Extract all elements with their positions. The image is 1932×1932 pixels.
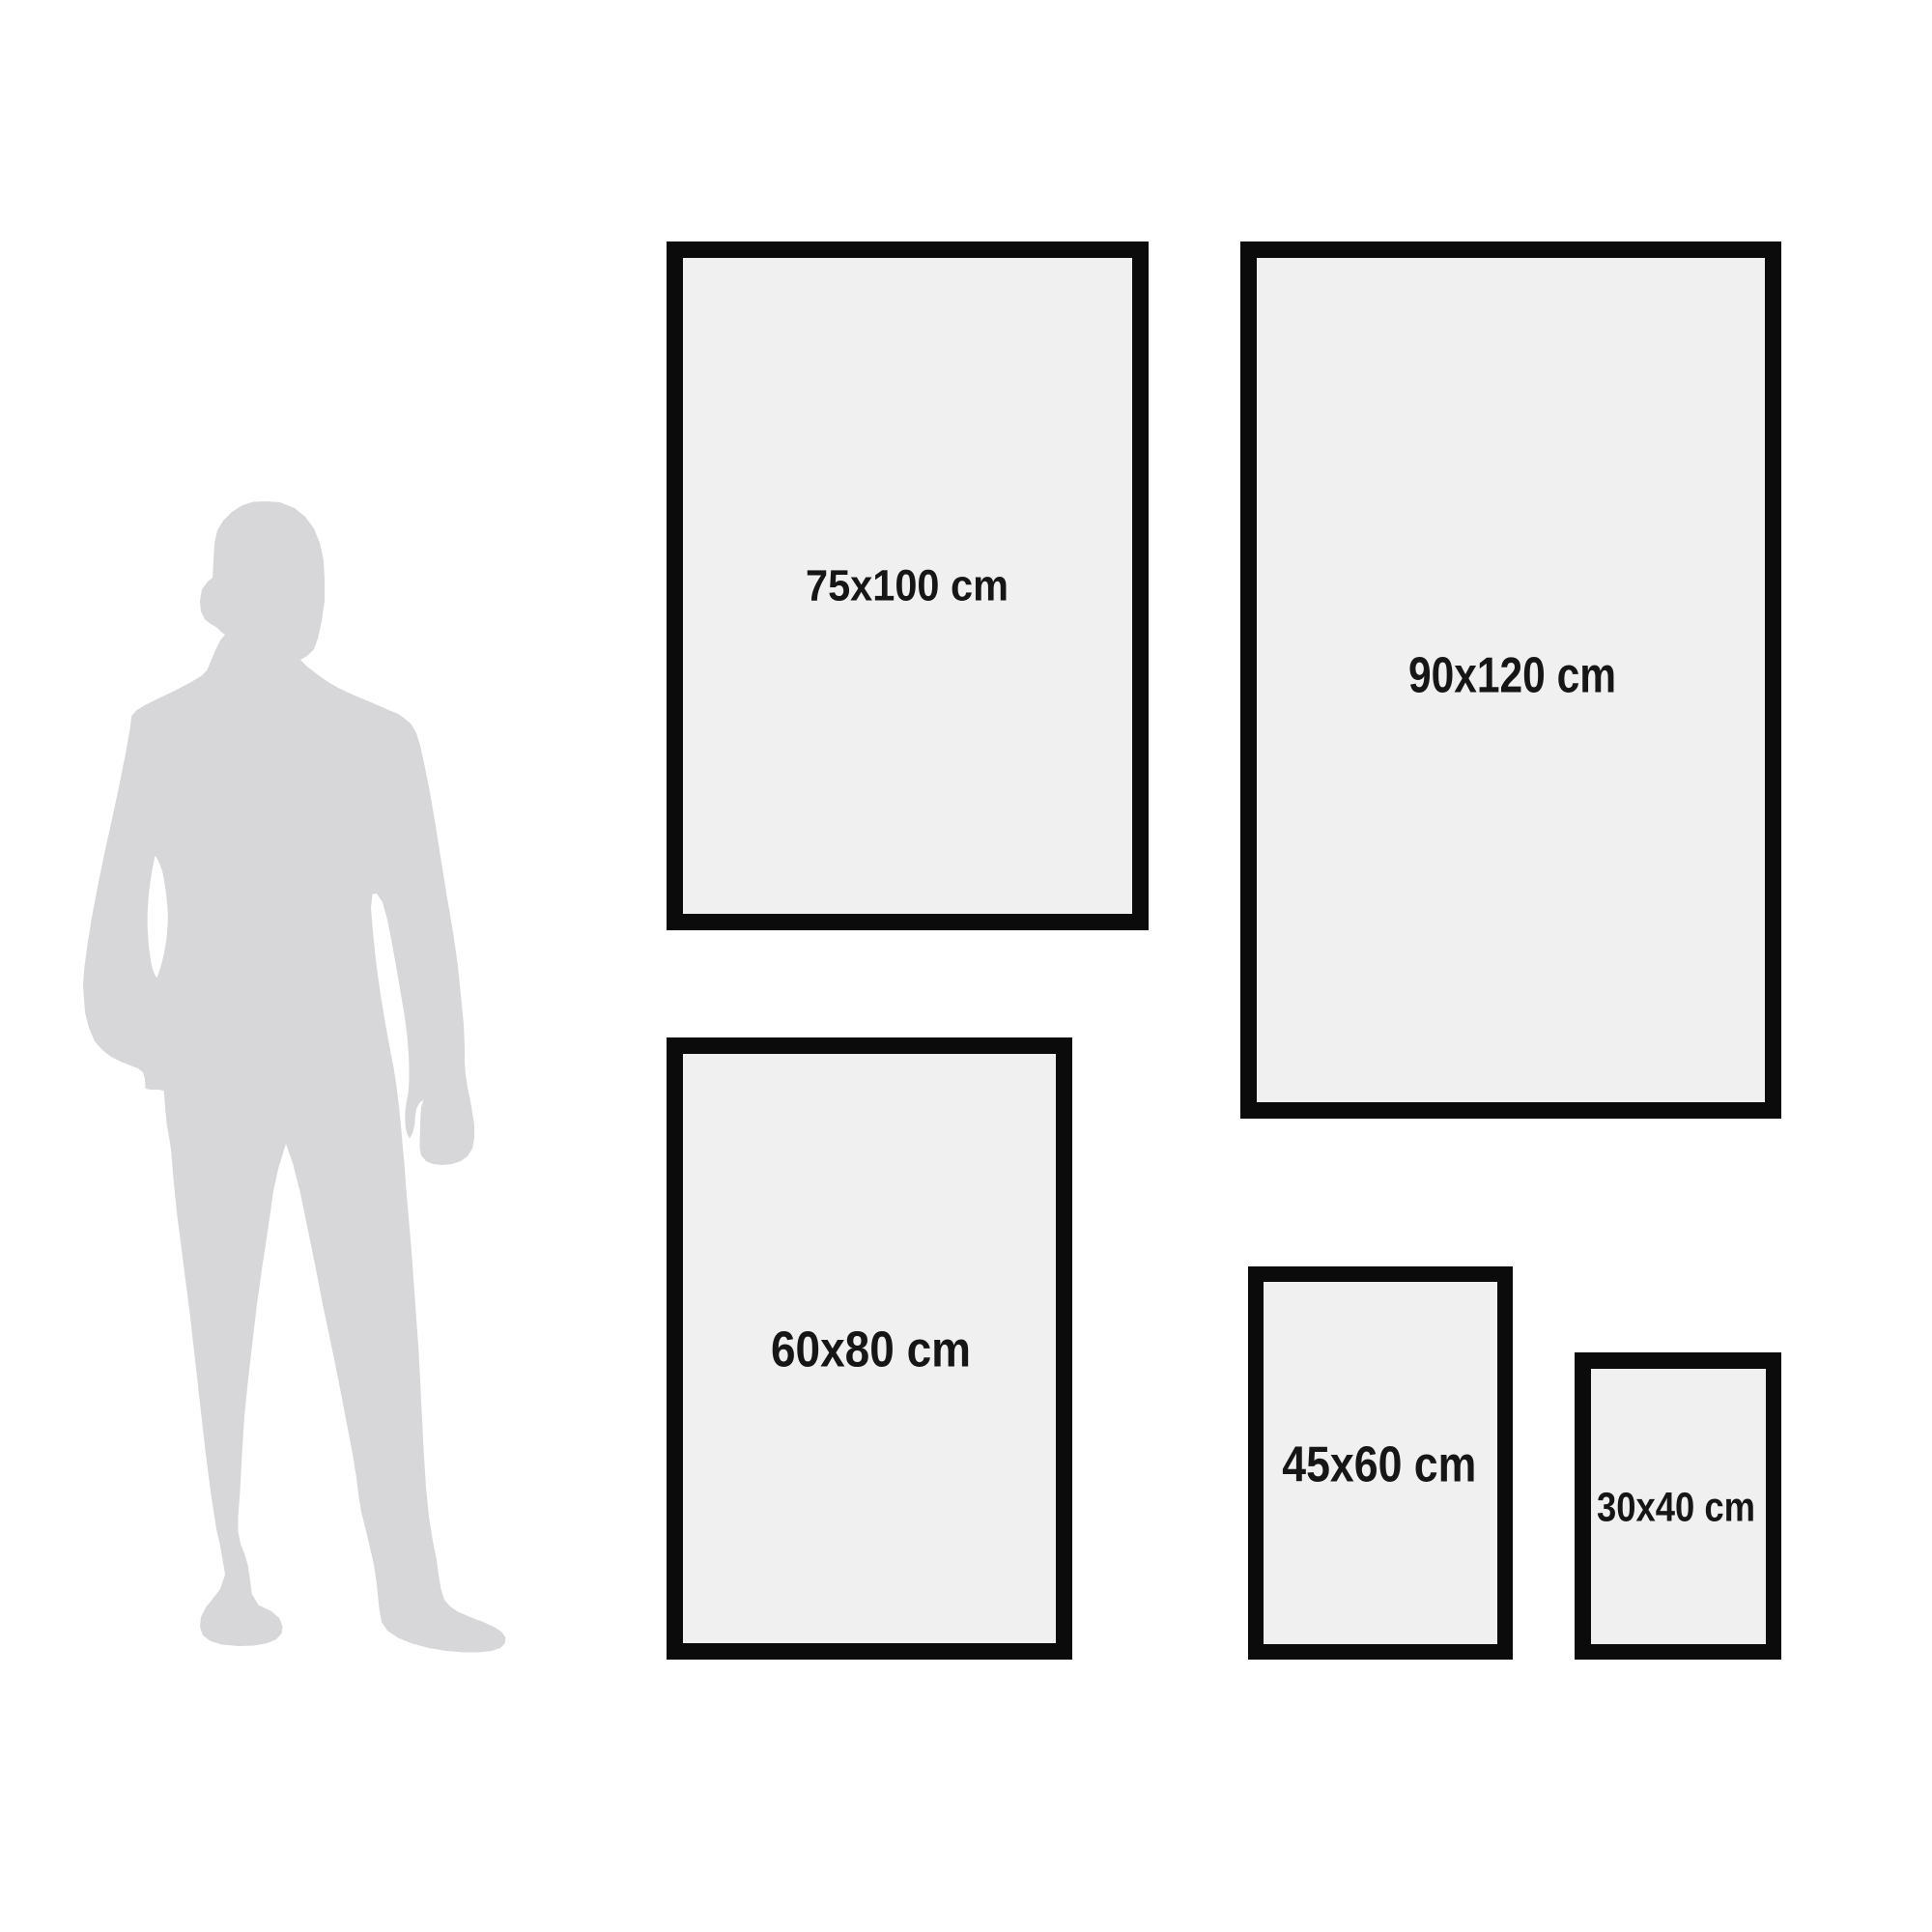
svg-text:30x40 cm: 30x40 cm xyxy=(1597,1484,1755,1530)
svg-text:45x60 cm: 45x60 cm xyxy=(1282,1435,1476,1492)
svg-text:75x100 cm: 75x100 cm xyxy=(806,561,1009,611)
svg-text:90x120 cm: 90x120 cm xyxy=(1408,647,1616,703)
svg-text:60x80 cm: 60x80 cm xyxy=(771,1321,971,1378)
